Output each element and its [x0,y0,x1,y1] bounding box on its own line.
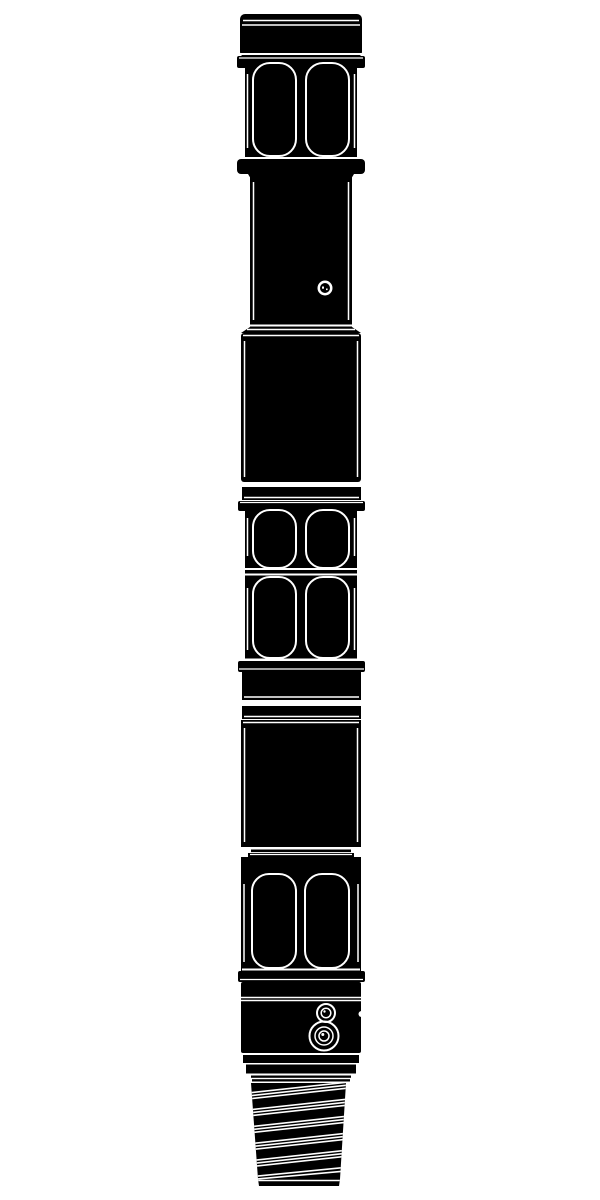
top-box-connection [237,14,365,68]
port-glint-2 [326,289,328,291]
relief-groove-2 [252,1079,350,1081]
bottom-slot-left [252,874,296,968]
mid-lower-slot-right [306,577,349,658]
edge-notch [359,1011,365,1017]
bottom-collar [237,159,365,174]
thin-washer-line [251,850,351,853]
relief-groove-1 [251,1076,351,1078]
mid-upper-slot-right [306,510,349,568]
bottom-collar-top [241,857,361,873]
bottom-collar [238,971,365,982]
ported-sub [241,982,365,1053]
large-port-glint [321,1033,324,1036]
mid-lower-slot-left [253,577,296,658]
pin-flange [243,1055,359,1063]
band-a [242,672,361,700]
bottom-slot-right [305,874,349,968]
bottom-wrench-flat-section [238,853,365,982]
wrench-slot-left [253,63,296,156]
lower-housing-body [241,720,361,847]
small-port-glint [323,1010,325,1012]
mid-upper-slot-left [253,510,296,568]
housing-body [241,333,361,482]
pin-thread-connection [243,1055,359,1186]
mid-bottom-collar [238,661,365,672]
spacer-band-upper [242,487,361,500]
wrench-slot-right [306,63,349,156]
mandrel-tube [250,174,352,327]
spacer-band-lower [242,672,361,719]
upper-mandrel [241,174,361,333]
top-wrench-flat-section [237,62,365,179]
port-hole [320,283,330,293]
tool-illustration [0,0,600,1200]
upper-housing [241,333,361,482]
ported-sub-body [241,982,361,1053]
pin-shoulder [246,1065,356,1074]
mid-wrench-flat-section [238,501,365,672]
port-glint-1 [322,287,324,289]
lower-housing [241,720,361,852]
